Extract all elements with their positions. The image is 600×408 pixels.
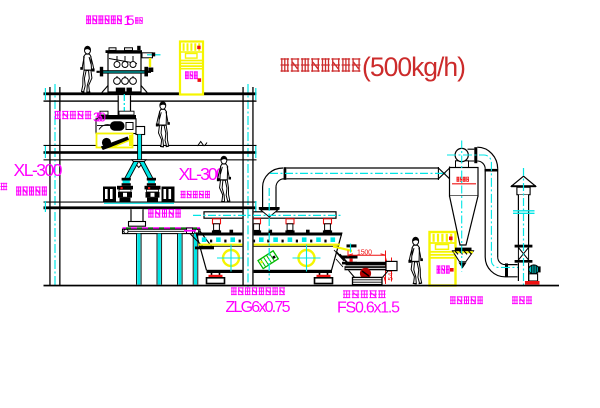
svg-text:XL-300: XL-300 [14, 160, 63, 180]
svg-text:1500: 1500 [357, 250, 372, 257]
svg-text:FS0.6x1.5: FS0.6x1.5 [337, 300, 400, 317]
svg-text:ZLG6x0.75: ZLG6x0.75 [226, 299, 291, 316]
svg-text:350: 350 [93, 111, 106, 125]
svg-text:(500kg/h): (500kg/h) [362, 52, 466, 82]
svg-text:1.5: 1.5 [124, 13, 135, 28]
